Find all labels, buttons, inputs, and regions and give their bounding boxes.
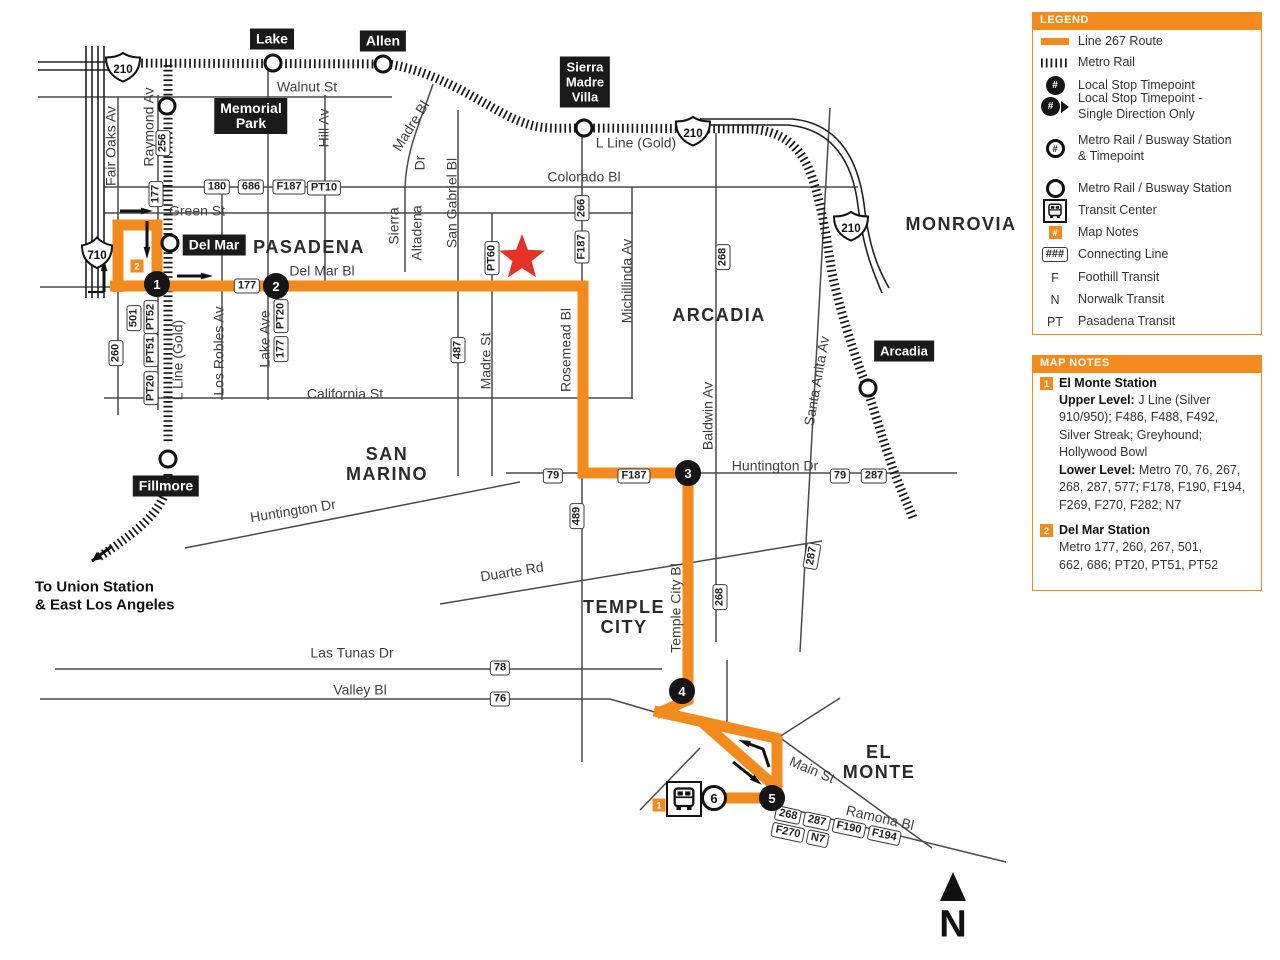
route-badge: PT51 xyxy=(144,333,159,367)
highlight-star-icon xyxy=(499,234,545,277)
route-badge: 260 xyxy=(109,340,124,366)
legend-item-label: Transit Center xyxy=(1078,202,1157,218)
shield-number: 210 xyxy=(683,128,702,140)
street-label: Michillinda Av xyxy=(620,239,635,324)
stop-3-marker: 3 xyxy=(675,460,701,486)
route-badge: F187 xyxy=(617,469,650,484)
street-label: Lake Ave xyxy=(258,310,273,367)
map-notes-header: MAP NOTES xyxy=(1032,355,1262,372)
city-label: TEMPLE CITY xyxy=(583,597,665,637)
station-name-box: Fillmore xyxy=(133,476,199,497)
agency-letter-F: F xyxy=(1040,268,1070,287)
route-badge: PT20 xyxy=(274,299,289,333)
city-label: MONROVIA xyxy=(906,214,1017,234)
map-note-bold: Lower Level: xyxy=(1059,463,1135,477)
street-label: California St xyxy=(307,387,383,402)
street-label: Rosemead Bl xyxy=(559,308,574,392)
street-label: Madre St xyxy=(479,333,494,390)
map-note-line: Hollywood Bowl xyxy=(1059,445,1147,459)
connecting-badge: ### xyxy=(1042,247,1068,262)
stop-4-marker: 4 xyxy=(669,678,695,704)
north-label: N xyxy=(939,904,966,947)
shield-number: 210 xyxy=(113,64,132,76)
station-name-box: Arcadia xyxy=(874,341,934,362)
street-label: Green St xyxy=(169,204,225,219)
station-timepoint-icon: # xyxy=(1040,139,1070,158)
route-badge: 686 xyxy=(238,180,264,195)
line-267-route xyxy=(110,286,688,714)
station-circle xyxy=(575,119,594,138)
route-badge: 268 xyxy=(716,244,731,270)
station-circle xyxy=(161,234,180,253)
route-badge: 266 xyxy=(575,195,590,221)
street-label: Los Robles Av xyxy=(212,306,227,395)
street-label: San Gabriel Bl xyxy=(445,158,460,248)
shield-number: 710 xyxy=(87,250,106,262)
stop-timepoint-icon: # xyxy=(1040,76,1070,95)
street-label: Huntington Dr xyxy=(732,459,818,474)
route-line-swatch xyxy=(1040,32,1070,51)
street-label: Dr xyxy=(413,156,428,171)
station-icon xyxy=(1040,179,1070,198)
interstate-210-shield: 210 xyxy=(676,117,710,146)
map-note-line: 910/950); F486, F488, F492, xyxy=(1059,410,1218,424)
map-note-line: 268, 287, 577; F178, F190, F194, xyxy=(1059,480,1245,494)
station-name-box: Lake xyxy=(250,29,294,50)
shield-number: 210 xyxy=(841,223,860,235)
route-badge: PT10 xyxy=(307,181,341,196)
street-label: Hill Av xyxy=(317,109,332,148)
map-note-1-marker: 1 xyxy=(653,799,666,812)
city-label: EL MONTE xyxy=(843,742,916,782)
legend-item-label: Metro Rail / Busway Station & Timepoint xyxy=(1078,132,1232,164)
map-note-line: Metro 177, 260, 267, 501, xyxy=(1059,540,1202,554)
destination-text: To Union Station xyxy=(35,579,154,596)
stop-5-marker: 5 xyxy=(759,785,785,811)
city-label: SAN MARINO xyxy=(346,444,428,484)
agency-letter-PT: PT xyxy=(1040,312,1070,331)
legend-item-label: Norwalk Transit xyxy=(1078,291,1164,307)
station-circle xyxy=(264,54,283,73)
map-note-line: Lower Level: Metro 70, 76, 267, xyxy=(1059,463,1240,477)
street-label: Las Tunas Dr xyxy=(310,646,393,661)
street-label: Altadena xyxy=(410,205,425,260)
route-badge: 501 xyxy=(127,305,142,331)
map-note-line: Upper Level: J Line (Silver xyxy=(1059,393,1210,407)
city-label: PASADENA xyxy=(253,237,365,257)
station-circle xyxy=(374,55,393,74)
route-badge: 177 xyxy=(149,181,164,207)
street-line xyxy=(779,698,840,737)
street-label: Valley Bl xyxy=(333,683,386,698)
route-badge: F187 xyxy=(272,180,305,195)
map-note-line: Silver Streak; Greyhound; xyxy=(1059,428,1202,442)
map-canvas: 210210210710 NPASADENAMONROVIAARCADIASAN… xyxy=(0,0,1280,960)
stop-timepoint-single-icon: # xyxy=(1040,97,1070,116)
direction-arrowhead xyxy=(738,740,751,747)
route-badge: 177 xyxy=(234,279,260,294)
legend-item-label: Pasadena Transit xyxy=(1078,313,1175,329)
bus-icon xyxy=(670,785,698,813)
legend-item-label: Connecting Line xyxy=(1078,246,1168,262)
direction-arrowhead xyxy=(201,273,213,280)
street-label: L Line (Gold) xyxy=(596,136,676,151)
route-badge: 177 xyxy=(274,336,289,362)
interstate-210-shield: 210 xyxy=(106,53,140,82)
map-note-line: F269, F270, F282; N7 xyxy=(1059,498,1181,512)
legend-item-label: Foothill Transit xyxy=(1078,269,1159,285)
map-note-square: # xyxy=(1049,226,1062,239)
destination-text: & East Los Angeles xyxy=(35,597,174,614)
agency-letter: PT xyxy=(1047,315,1063,329)
route-badge: F187 xyxy=(575,230,590,263)
street-label: Raymond Av xyxy=(142,87,157,166)
route-badge: 79 xyxy=(830,469,850,484)
map-note-title: El Monte Station xyxy=(1059,376,1157,390)
transit-center-legend-icon xyxy=(1040,201,1070,220)
north-arrow-icon xyxy=(940,872,966,901)
station-name-box: Allen xyxy=(360,31,406,52)
bus-icon xyxy=(1046,202,1064,220)
station xyxy=(1046,179,1065,198)
route-badge: PT60 xyxy=(485,241,500,275)
metro-rail-swatch xyxy=(1040,53,1070,72)
legend-item-label: Metro Rail xyxy=(1078,54,1135,70)
transit-center-icon xyxy=(666,781,702,817)
station-name-box: Memorial Park xyxy=(214,98,287,134)
route-badge: 76 xyxy=(490,692,510,707)
map-note-bold: Upper Level: xyxy=(1059,393,1135,407)
route-badge: 79 xyxy=(543,469,563,484)
map-note-icon: # xyxy=(1040,223,1070,242)
route-badge: 287 xyxy=(861,469,887,484)
station-timepoint: # xyxy=(1046,139,1065,158)
street-label: Temple City Bl xyxy=(669,563,684,652)
route-badge: 487 xyxy=(451,337,466,363)
timepoint-icon: # xyxy=(1046,76,1065,95)
route-badge: 256 xyxy=(156,130,171,156)
route-badge: 268 xyxy=(713,584,728,610)
stop-6-marker: 6 xyxy=(701,785,727,811)
stop-1-marker: 1 xyxy=(144,271,170,297)
route-badge: 180 xyxy=(204,180,230,195)
map-note-title: Del Mar Station xyxy=(1059,523,1150,537)
map-notes-title: MAP NOTES xyxy=(1040,357,1110,369)
station-name-box: Del Mar xyxy=(183,235,246,256)
agency-letter: F xyxy=(1051,271,1059,285)
map-note-line: 662, 686; PT20, PT51, PT52 xyxy=(1059,558,1218,572)
legend-item-label: Local Stop Timepoint - Single Direction … xyxy=(1078,90,1202,122)
city-label: ARCADIA xyxy=(672,305,766,325)
legend-item-label: Metro Rail / Busway Station xyxy=(1078,180,1232,196)
street-label: Fair Oaks Av xyxy=(104,106,119,186)
street-line xyxy=(185,482,520,548)
street-label: Colorado Bl xyxy=(547,170,620,185)
route-swatch xyxy=(1041,38,1069,45)
legend-header: LEGEND xyxy=(1032,12,1262,29)
station-circle xyxy=(859,379,878,398)
route-badge: PT20 xyxy=(144,371,159,405)
agency-letter-N: N xyxy=(1040,290,1070,309)
direction-arrowhead xyxy=(144,247,151,259)
connecting-line-icon: ### xyxy=(1040,245,1070,264)
map-note-number: 2 xyxy=(1040,524,1053,537)
stop-2-marker: 2 xyxy=(263,273,289,299)
station-circle xyxy=(158,97,177,116)
street-label: Baldwin Av xyxy=(701,382,716,450)
route-badge: 78 xyxy=(490,661,510,676)
map-note-number: 1 xyxy=(1040,377,1053,390)
timepoint-single-icon: # xyxy=(1041,97,1069,116)
street-label: Del Mar Bl xyxy=(289,264,354,279)
street-line xyxy=(610,699,658,713)
street-label: Sierra xyxy=(387,207,402,244)
station-circle xyxy=(159,450,178,469)
legend-item-label: Map Notes xyxy=(1078,224,1138,240)
street-label: Walnut St xyxy=(277,80,337,95)
route-badge: PT52 xyxy=(144,300,159,334)
station-name-box: Sierra Madre Villa xyxy=(560,57,610,108)
route-badge: 489 xyxy=(570,503,585,529)
street-label: L Line (Gold) xyxy=(171,320,186,400)
legend-item-label: Line 267 Route xyxy=(1078,33,1163,49)
agency-letter: N xyxy=(1050,293,1059,307)
map-note-2-marker: 2 xyxy=(131,260,144,273)
legend-title: LEGEND xyxy=(1040,14,1089,26)
